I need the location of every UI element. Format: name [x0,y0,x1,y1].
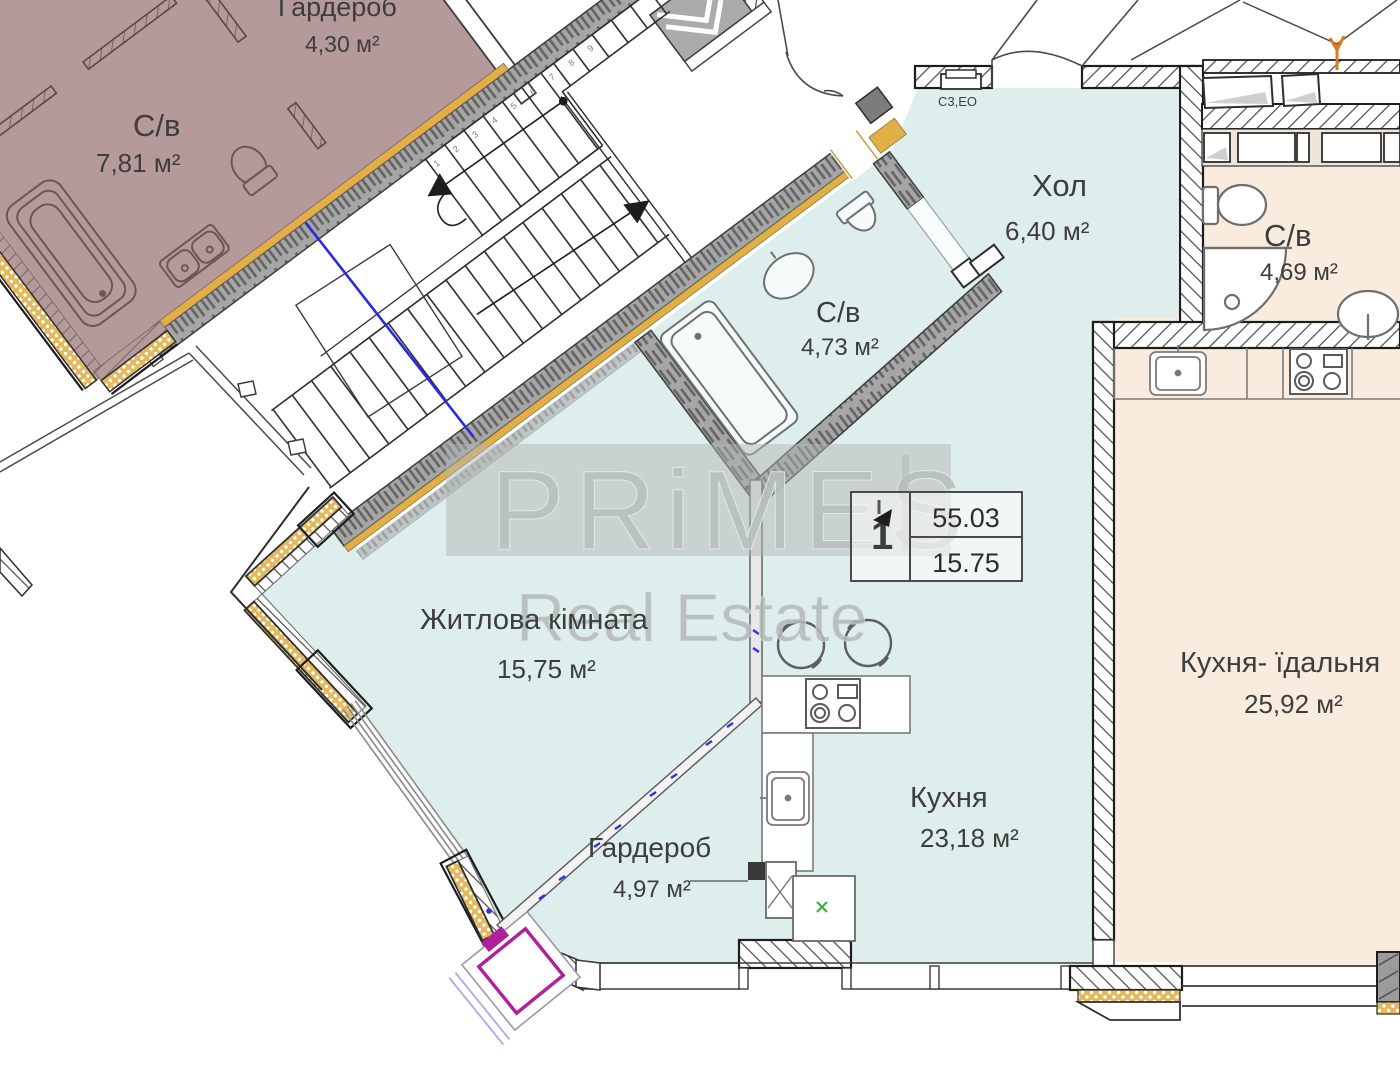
svg-text:4,97 м²: 4,97 м² [613,876,691,903]
svg-text:7,81 м²: 7,81 м² [96,148,181,178]
svg-text:Кухня- їдальня: Кухня- їдальня [1180,647,1380,679]
svg-text:Житлова кімната: Житлова кімната [420,604,649,636]
svg-text:Хол: Хол [1032,168,1087,203]
svg-text:С3,ЕО: С3,ЕО [938,94,977,109]
svg-text:4,69 м²: 4,69 м² [1260,259,1338,286]
svg-text:Гардероб: Гардероб [588,832,711,863]
svg-text:Гардероб: Гардероб [278,0,397,22]
svg-text:15,75 м²: 15,75 м² [497,654,596,684]
svg-text:Кухня: Кухня [910,782,988,814]
svg-text:4,73 м²: 4,73 м² [801,334,879,361]
svg-text:55.03: 55.03 [932,503,1000,533]
svg-text:25,92 м²: 25,92 м² [1244,689,1343,719]
svg-text:15.75: 15.75 [932,548,1000,578]
svg-text:6,40 м²: 6,40 м² [1005,216,1090,246]
svg-text:23,18 м²: 23,18 м² [920,823,1019,853]
svg-text:С/в: С/в [1264,218,1311,253]
svg-text:С/в: С/в [816,297,860,329]
svg-text:С/в: С/в [133,108,180,143]
svg-text:4,30 м²: 4,30 м² [305,31,380,57]
